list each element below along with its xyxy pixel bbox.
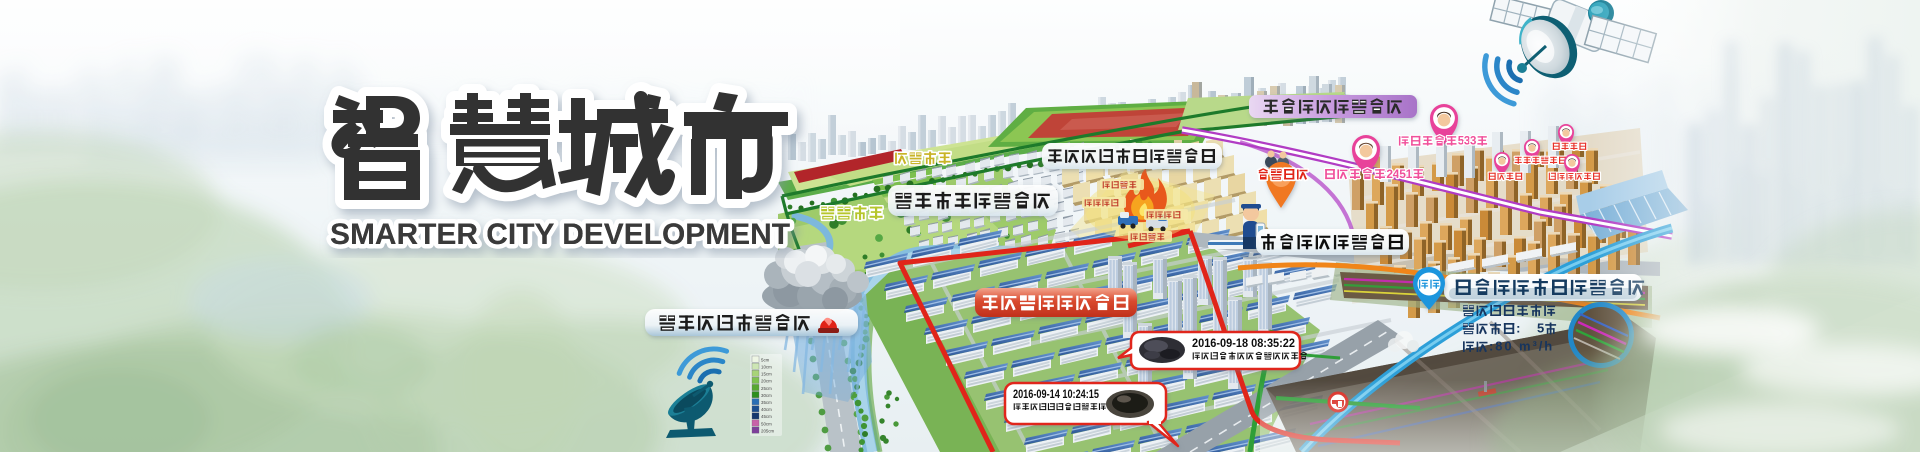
svg-text:2451: 2451	[1386, 167, 1412, 181]
svg-text:5cm: 5cm	[761, 357, 770, 362]
svg-text:45cm: 45cm	[761, 414, 772, 419]
svg-text:25cm: 25cm	[761, 386, 772, 391]
svg-text:533: 533	[1458, 135, 1477, 147]
svg-text:205cm: 205cm	[761, 428, 775, 433]
svg-text:15cm: 15cm	[761, 372, 772, 377]
svg-text:35cm: 35cm	[761, 400, 772, 405]
svg-text:2016-09-14 10:24:15: 2016-09-14 10:24:15	[1013, 387, 1099, 401]
svg-text:40cm: 40cm	[761, 407, 772, 412]
svg-text:30cm: 30cm	[761, 393, 772, 398]
svg-text:2016-09-18 08:35:22: 2016-09-18 08:35:22	[1192, 336, 1295, 350]
svg-text:SMARTER CITY DEVELOPMENT: SMARTER CITY DEVELOPMENT	[330, 218, 790, 251]
svg-text:20cm: 20cm	[761, 379, 772, 384]
svg-text:50cm: 50cm	[761, 421, 772, 426]
svg-text:10cm: 10cm	[761, 365, 772, 370]
